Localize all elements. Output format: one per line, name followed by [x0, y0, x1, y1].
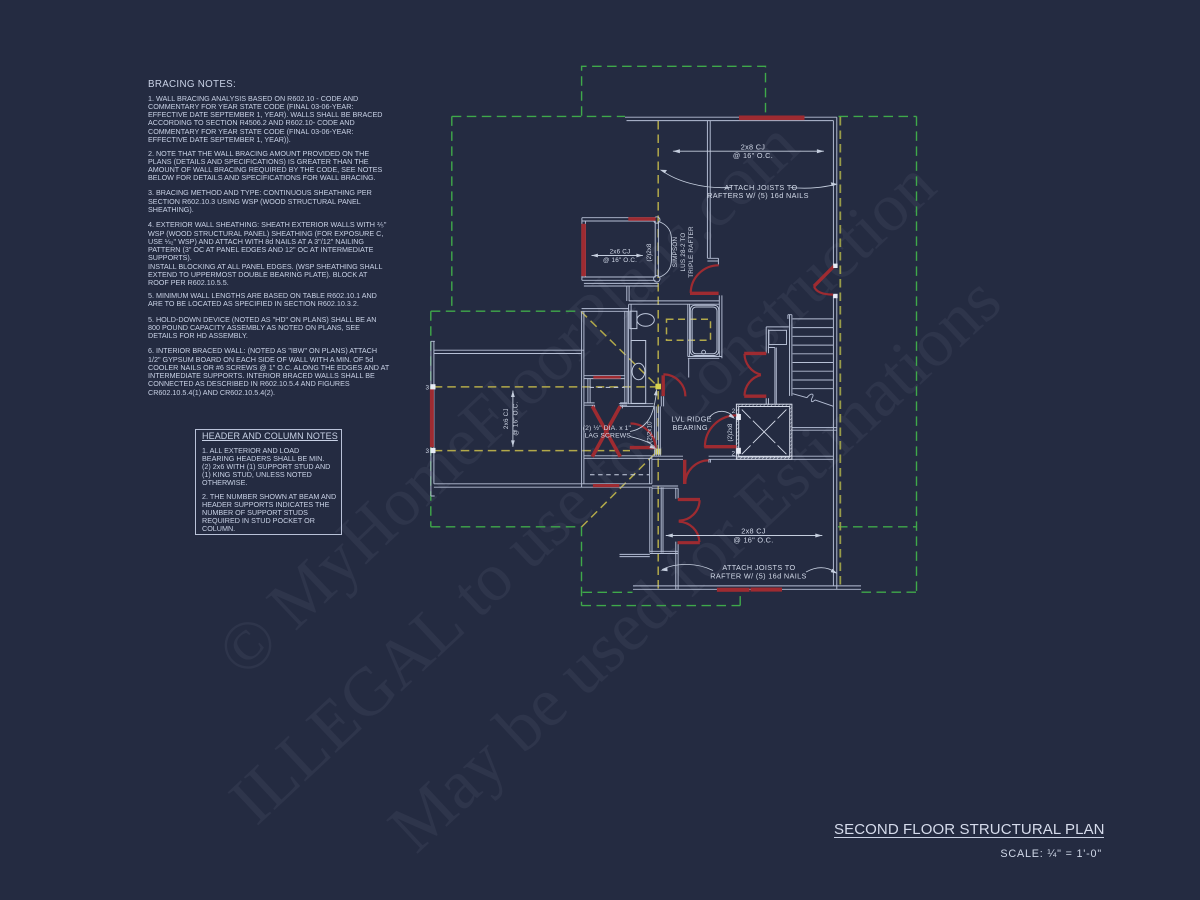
- svg-text:@ 16" O.C.: @ 16" O.C.: [603, 257, 637, 264]
- svg-text:2x8 CJ: 2x8 CJ: [741, 142, 766, 151]
- svg-text:RAFTERS W/ (5) 16d NAILS: RAFTERS W/ (5) 16d NAILS: [707, 191, 809, 200]
- svg-text:2: 2: [732, 408, 736, 415]
- svg-text:2: 2: [731, 450, 735, 457]
- svg-text:@ 16" O.C.: @ 16" O.C.: [733, 151, 773, 160]
- svg-text:2x6 CJ: 2x6 CJ: [610, 248, 631, 255]
- svg-text:(2)2x8: (2)2x8: [727, 423, 734, 441]
- svg-text:LUS 28-2 TO: LUS 28-2 TO: [680, 232, 687, 271]
- svg-text:3: 3: [425, 448, 429, 455]
- svg-text:2x8 CJ: 2x8 CJ: [741, 527, 766, 536]
- svg-text:@ 16" O.C.: @ 16" O.C.: [733, 536, 773, 545]
- svg-text:TRIPLE RAFTER: TRIPLE RAFTER: [688, 226, 695, 278]
- svg-text:(2)2x10: (2)2x10: [647, 421, 654, 443]
- svg-text:RAFTER W/ (5) 16d NAILS: RAFTER W/ (5) 16d NAILS: [710, 572, 806, 581]
- svg-text:3: 3: [425, 384, 429, 391]
- svg-text:BEARING: BEARING: [673, 423, 708, 432]
- svg-text:LAG SCREWS: LAG SCREWS: [585, 432, 632, 439]
- svg-text:2x6 CJ: 2x6 CJ: [503, 408, 510, 429]
- svg-text:(2)2x8: (2)2x8: [646, 243, 653, 261]
- svg-text:@ 16" O.C.: @ 16" O.C.: [512, 402, 519, 436]
- svg-text:SIMPSON: SIMPSON: [672, 237, 679, 268]
- svg-text:(2) ½" DIA. x 1": (2) ½" DIA. x 1": [583, 424, 632, 432]
